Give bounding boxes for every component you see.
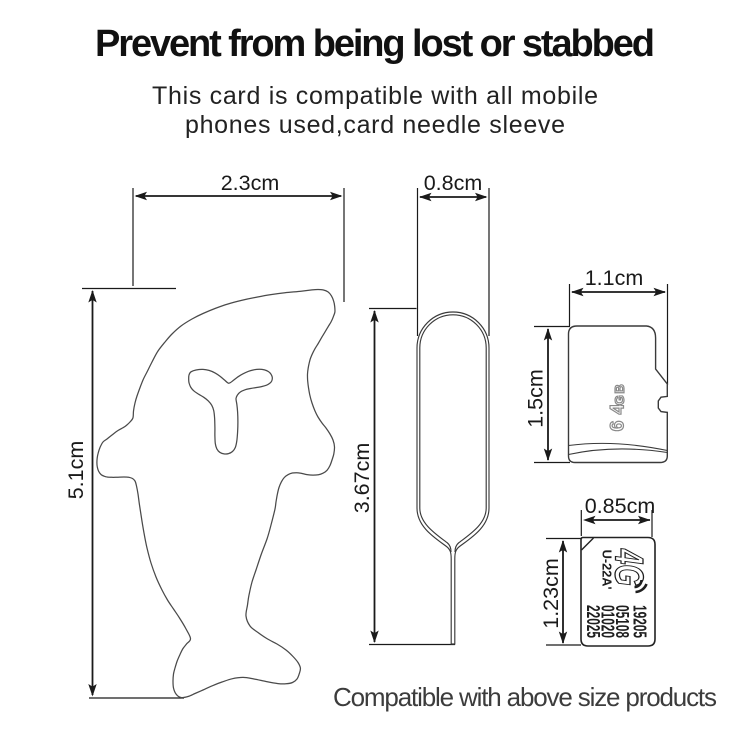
svg-text:0.85cm: 0.85cm (585, 494, 656, 518)
svg-text:GB: GB (612, 383, 627, 406)
svg-text:U-22A': U-22A' (599, 550, 613, 590)
svg-text:1.5cm: 1.5cm (524, 369, 548, 428)
svg-text:5.1cm: 5.1cm (64, 441, 88, 500)
svg-text:phones used,card needle sleeve: phones used,card needle sleeve (185, 111, 565, 139)
svg-text:2.3cm: 2.3cm (221, 171, 280, 195)
svg-text:22025: 22025 (583, 605, 603, 638)
svg-text:1.1cm: 1.1cm (585, 266, 644, 290)
svg-text:This card is compatible with a: This card is compatible with all mobile (152, 82, 598, 110)
svg-text:0.8cm: 0.8cm (424, 171, 483, 195)
svg-text:3.67cm: 3.67cm (350, 443, 374, 514)
svg-text:1.23cm: 1.23cm (539, 558, 563, 629)
svg-text:Prevent from being lost or sta: Prevent from being lost or stabbed (95, 23, 655, 65)
svg-text:Compatible with above size pro: Compatible with above size products (333, 682, 717, 712)
